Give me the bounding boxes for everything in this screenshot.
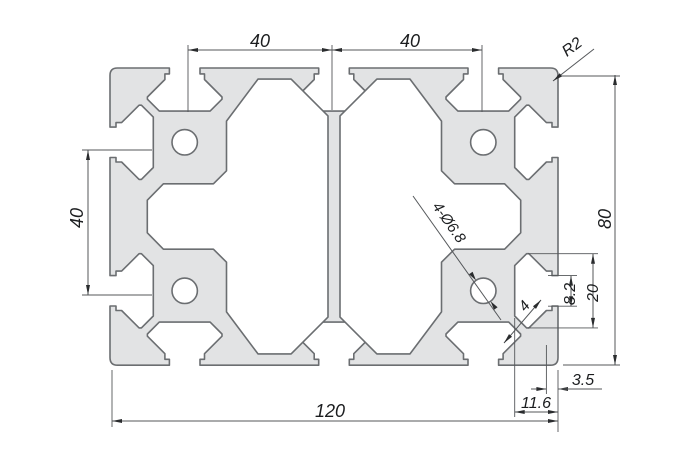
dim-label-11-6: 11.6: [521, 395, 551, 412]
core-hole-top-left: [172, 130, 197, 155]
dim-label-120: 120: [315, 401, 345, 421]
cad-drawing-canvas: 40 40 40 80 20 8.2 3.5 11.6 120: [0, 0, 694, 450]
dim-label-top-40-right: 40: [400, 31, 420, 51]
dim-label-left-40: 40: [67, 208, 87, 228]
dim-label-top-40-left: 40: [250, 31, 270, 51]
dim-label-slot-20: 20: [585, 284, 602, 303]
dim-label-slot-8-2: 8.2: [562, 283, 579, 305]
profile-drawing-svg: 40 40 40 80 20 8.2 3.5 11.6 120: [0, 0, 694, 450]
core-hole-bottom-left: [172, 278, 197, 303]
dim-label-height-80: 80: [595, 209, 615, 229]
core-hole-top-right: [471, 130, 496, 155]
dim-label-3-5: 3.5: [572, 372, 594, 389]
